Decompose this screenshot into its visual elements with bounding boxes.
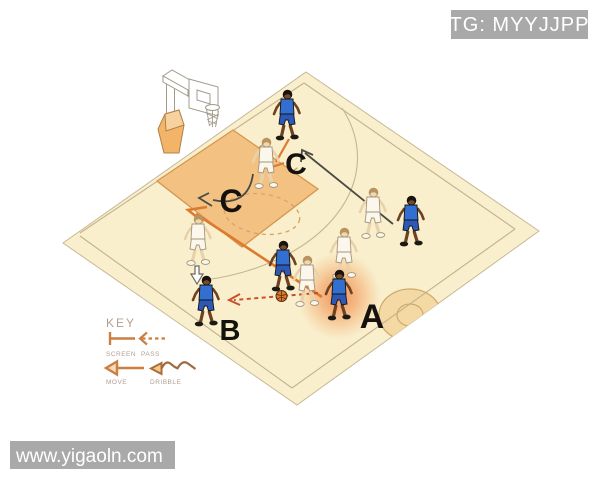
svg-text:DRIBBLE: DRIBBLE [150, 379, 181, 386]
svg-text:www.yigaoln.com: www.yigaoln.com [15, 446, 163, 467]
svg-text:C: C [285, 148, 307, 181]
svg-text:PASS: PASS [141, 351, 160, 358]
svg-text:A: A [360, 298, 385, 336]
svg-text:KEY: KEY [106, 316, 136, 330]
svg-text:MOVE: MOVE [106, 379, 127, 386]
svg-text:B: B [220, 315, 241, 347]
svg-text:SCREEN: SCREEN [106, 351, 136, 358]
svg-text:TG: MYYJJPP: TG: MYYJJPP [450, 14, 590, 36]
svg-text:C: C [219, 183, 242, 219]
